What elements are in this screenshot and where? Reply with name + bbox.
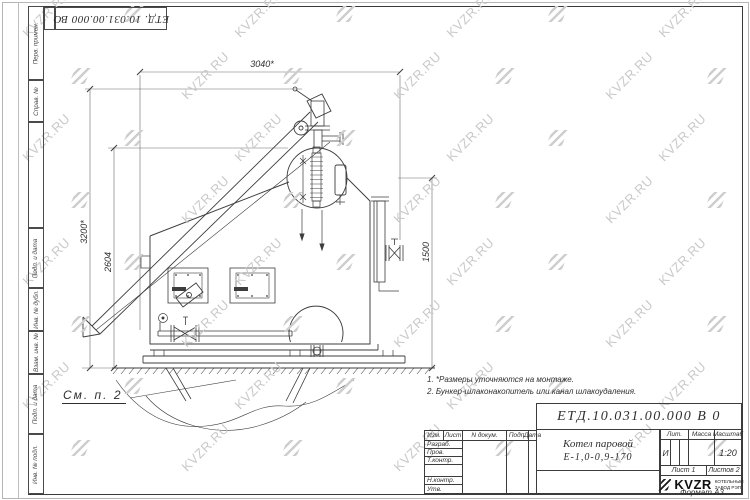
format-label: Формат А3 <box>662 488 742 497</box>
dim-2604: 2604 <box>103 252 113 273</box>
flue-duct <box>371 197 403 291</box>
margin-label: Подп. и дата <box>33 384 40 423</box>
fuel-conveyor-arm <box>83 94 331 337</box>
margin-field-sprav-no: Справ. № <box>28 80 44 122</box>
margin-label: Взам. инв. № <box>33 333 40 372</box>
title-designation-cell: ЕТД.10.031.00.000 В 0 <box>536 403 742 430</box>
base-frame <box>143 344 405 363</box>
margin-field-inv-dubl: Инв. № дубл. <box>28 288 44 331</box>
margin-label: Справ. № <box>33 87 40 116</box>
margin-field-perv-primen: Перв. примен. <box>28 6 44 80</box>
product-name-line2: Е-1,0-0,9-170 <box>563 452 632 463</box>
blowdown-piping <box>158 317 323 357</box>
corner-designation-text: ЕТД. 10.031.00.000 ВО <box>53 13 169 25</box>
margin-field-podp-data-1: Подп. и дата <box>28 228 44 288</box>
dim-3200: 3200* <box>79 220 89 244</box>
boiler-drum <box>287 147 347 250</box>
row-utv: Утв. <box>424 484 463 494</box>
col-date-body <box>528 440 537 494</box>
margin-field-podp-data-2: Подп. и дата <box>28 374 44 434</box>
margin-label: Перв. примен. <box>33 22 40 64</box>
col-doc-body <box>462 440 507 494</box>
dim-1500: 1500 <box>421 242 431 262</box>
margin-field-empty <box>28 122 44 228</box>
massa-value <box>688 439 715 466</box>
margin-label: Инв. № дубл. <box>33 290 40 329</box>
margin-label: Подп. и дата <box>33 238 40 277</box>
note-2: 2. Бункер-шлаконакопитель или канал шлак… <box>427 386 636 398</box>
margin-label: Инв. № подл. <box>33 444 40 483</box>
margin-field-vzam-inv: Взам. инв. № <box>28 331 44 374</box>
drawing-sheet: { "corner": { "designation": "ЕТД. 10.03… <box>0 0 750 500</box>
dimension-lines <box>82 72 437 368</box>
see-note-reference: См. п. 2 <box>62 388 126 404</box>
product-name-line1: Котел паровой <box>563 438 633 450</box>
note-1: 1. *Размеры уточняются на монтаже. <box>427 374 636 386</box>
scale-value: 1:20 <box>714 439 742 466</box>
col-sign-body <box>506 440 529 494</box>
title-empty-cell <box>536 470 660 494</box>
title-designation-text: ЕТД.10.031.00.000 В 0 <box>557 409 721 425</box>
dimension-ticks <box>87 69 435 371</box>
ground-and-pit <box>112 368 435 430</box>
corner-stamp-designation: ЕТД. 10.031.00.000 ВО <box>55 7 167 30</box>
dim-3040: 3040* <box>250 59 274 69</box>
margin-field-inv-podl: Инв. № подл. <box>28 434 44 494</box>
access-doors <box>168 268 275 303</box>
drawing-notes: 1. *Размеры уточняются на монтаже. 2. Бу… <box>427 374 636 397</box>
product-name-cell: Котел паровой Е-1,0-0,9-170 <box>536 429 660 471</box>
